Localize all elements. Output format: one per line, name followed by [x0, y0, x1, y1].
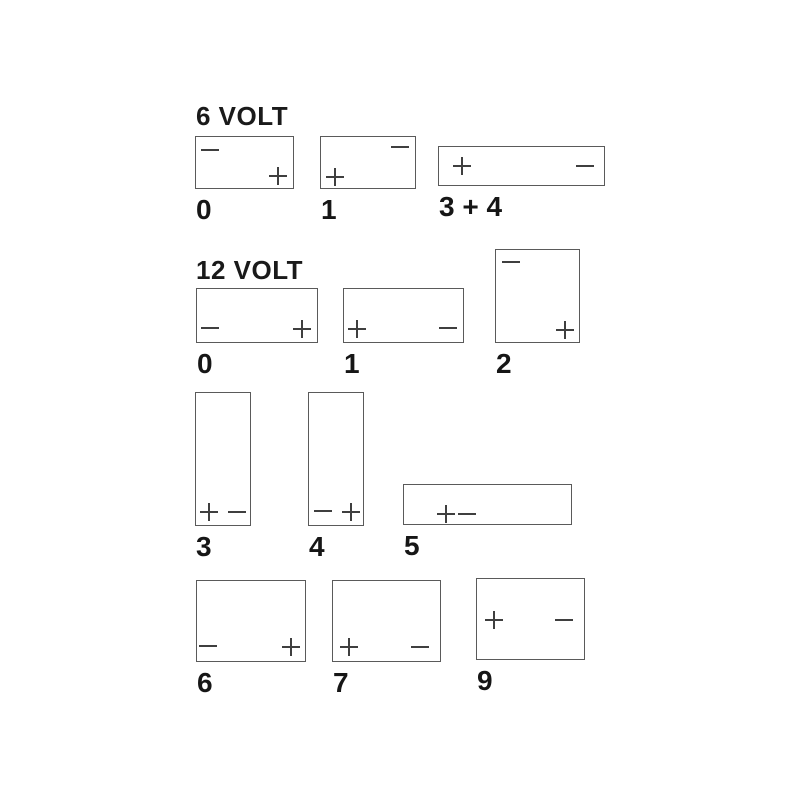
plus-terminal-icon: [437, 505, 455, 523]
plus-terminal-icon: [293, 320, 311, 338]
battery-outline-0: [196, 288, 318, 343]
battery-outline-6: [196, 580, 306, 662]
battery-terminal-layout-diagram: 6 VOLT 12 VOLT 013 + 4012345679: [0, 0, 800, 800]
minus-terminal-icon: [199, 637, 217, 655]
minus-terminal-icon: [502, 253, 520, 271]
battery-outline-34: [438, 146, 605, 186]
battery-outline-9: [476, 578, 585, 660]
battery-outline-1: [320, 136, 416, 189]
battery-outline-2: [495, 249, 580, 343]
minus-terminal-icon: [458, 505, 476, 523]
minus-terminal-icon: [439, 319, 457, 337]
minus-terminal-icon: [228, 503, 246, 521]
plus-terminal-icon: [485, 611, 503, 629]
battery-code-label: 6: [197, 669, 213, 697]
battery-code-label: 1: [321, 196, 337, 224]
plus-terminal-icon: [348, 320, 366, 338]
minus-terminal-icon: [201, 141, 219, 159]
plus-terminal-icon: [342, 503, 360, 521]
battery-outline-5: [403, 484, 572, 525]
plus-terminal-icon: [326, 168, 344, 186]
minus-terminal-icon: [314, 502, 332, 520]
plus-terminal-icon: [282, 638, 300, 656]
battery-code-label: 1: [344, 350, 360, 378]
section-title-12-volt: 12 VOLT: [196, 257, 303, 283]
battery-outline-3: [195, 392, 251, 526]
minus-terminal-icon: [391, 138, 409, 156]
plus-terminal-icon: [453, 157, 471, 175]
battery-code-label: 3 + 4: [439, 193, 502, 221]
battery-outline-4: [308, 392, 364, 526]
plus-terminal-icon: [200, 503, 218, 521]
battery-code-label: 9: [477, 667, 493, 695]
battery-outline-7: [332, 580, 441, 662]
battery-code-label: 2: [496, 350, 512, 378]
plus-terminal-icon: [340, 638, 358, 656]
minus-terminal-icon: [576, 157, 594, 175]
battery-code-label: 0: [197, 350, 213, 378]
battery-code-label: 7: [333, 669, 349, 697]
battery-outline-1: [343, 288, 464, 343]
battery-outline-0: [195, 136, 294, 189]
plus-terminal-icon: [269, 167, 287, 185]
battery-code-label: 3: [196, 533, 212, 561]
minus-terminal-icon: [201, 319, 219, 337]
minus-terminal-icon: [411, 638, 429, 656]
minus-terminal-icon: [555, 611, 573, 629]
plus-terminal-icon: [556, 321, 574, 339]
section-title-6-volt: 6 VOLT: [196, 103, 288, 129]
battery-code-label: 0: [196, 196, 212, 224]
battery-code-label: 4: [309, 533, 325, 561]
battery-code-label: 5: [404, 532, 420, 560]
